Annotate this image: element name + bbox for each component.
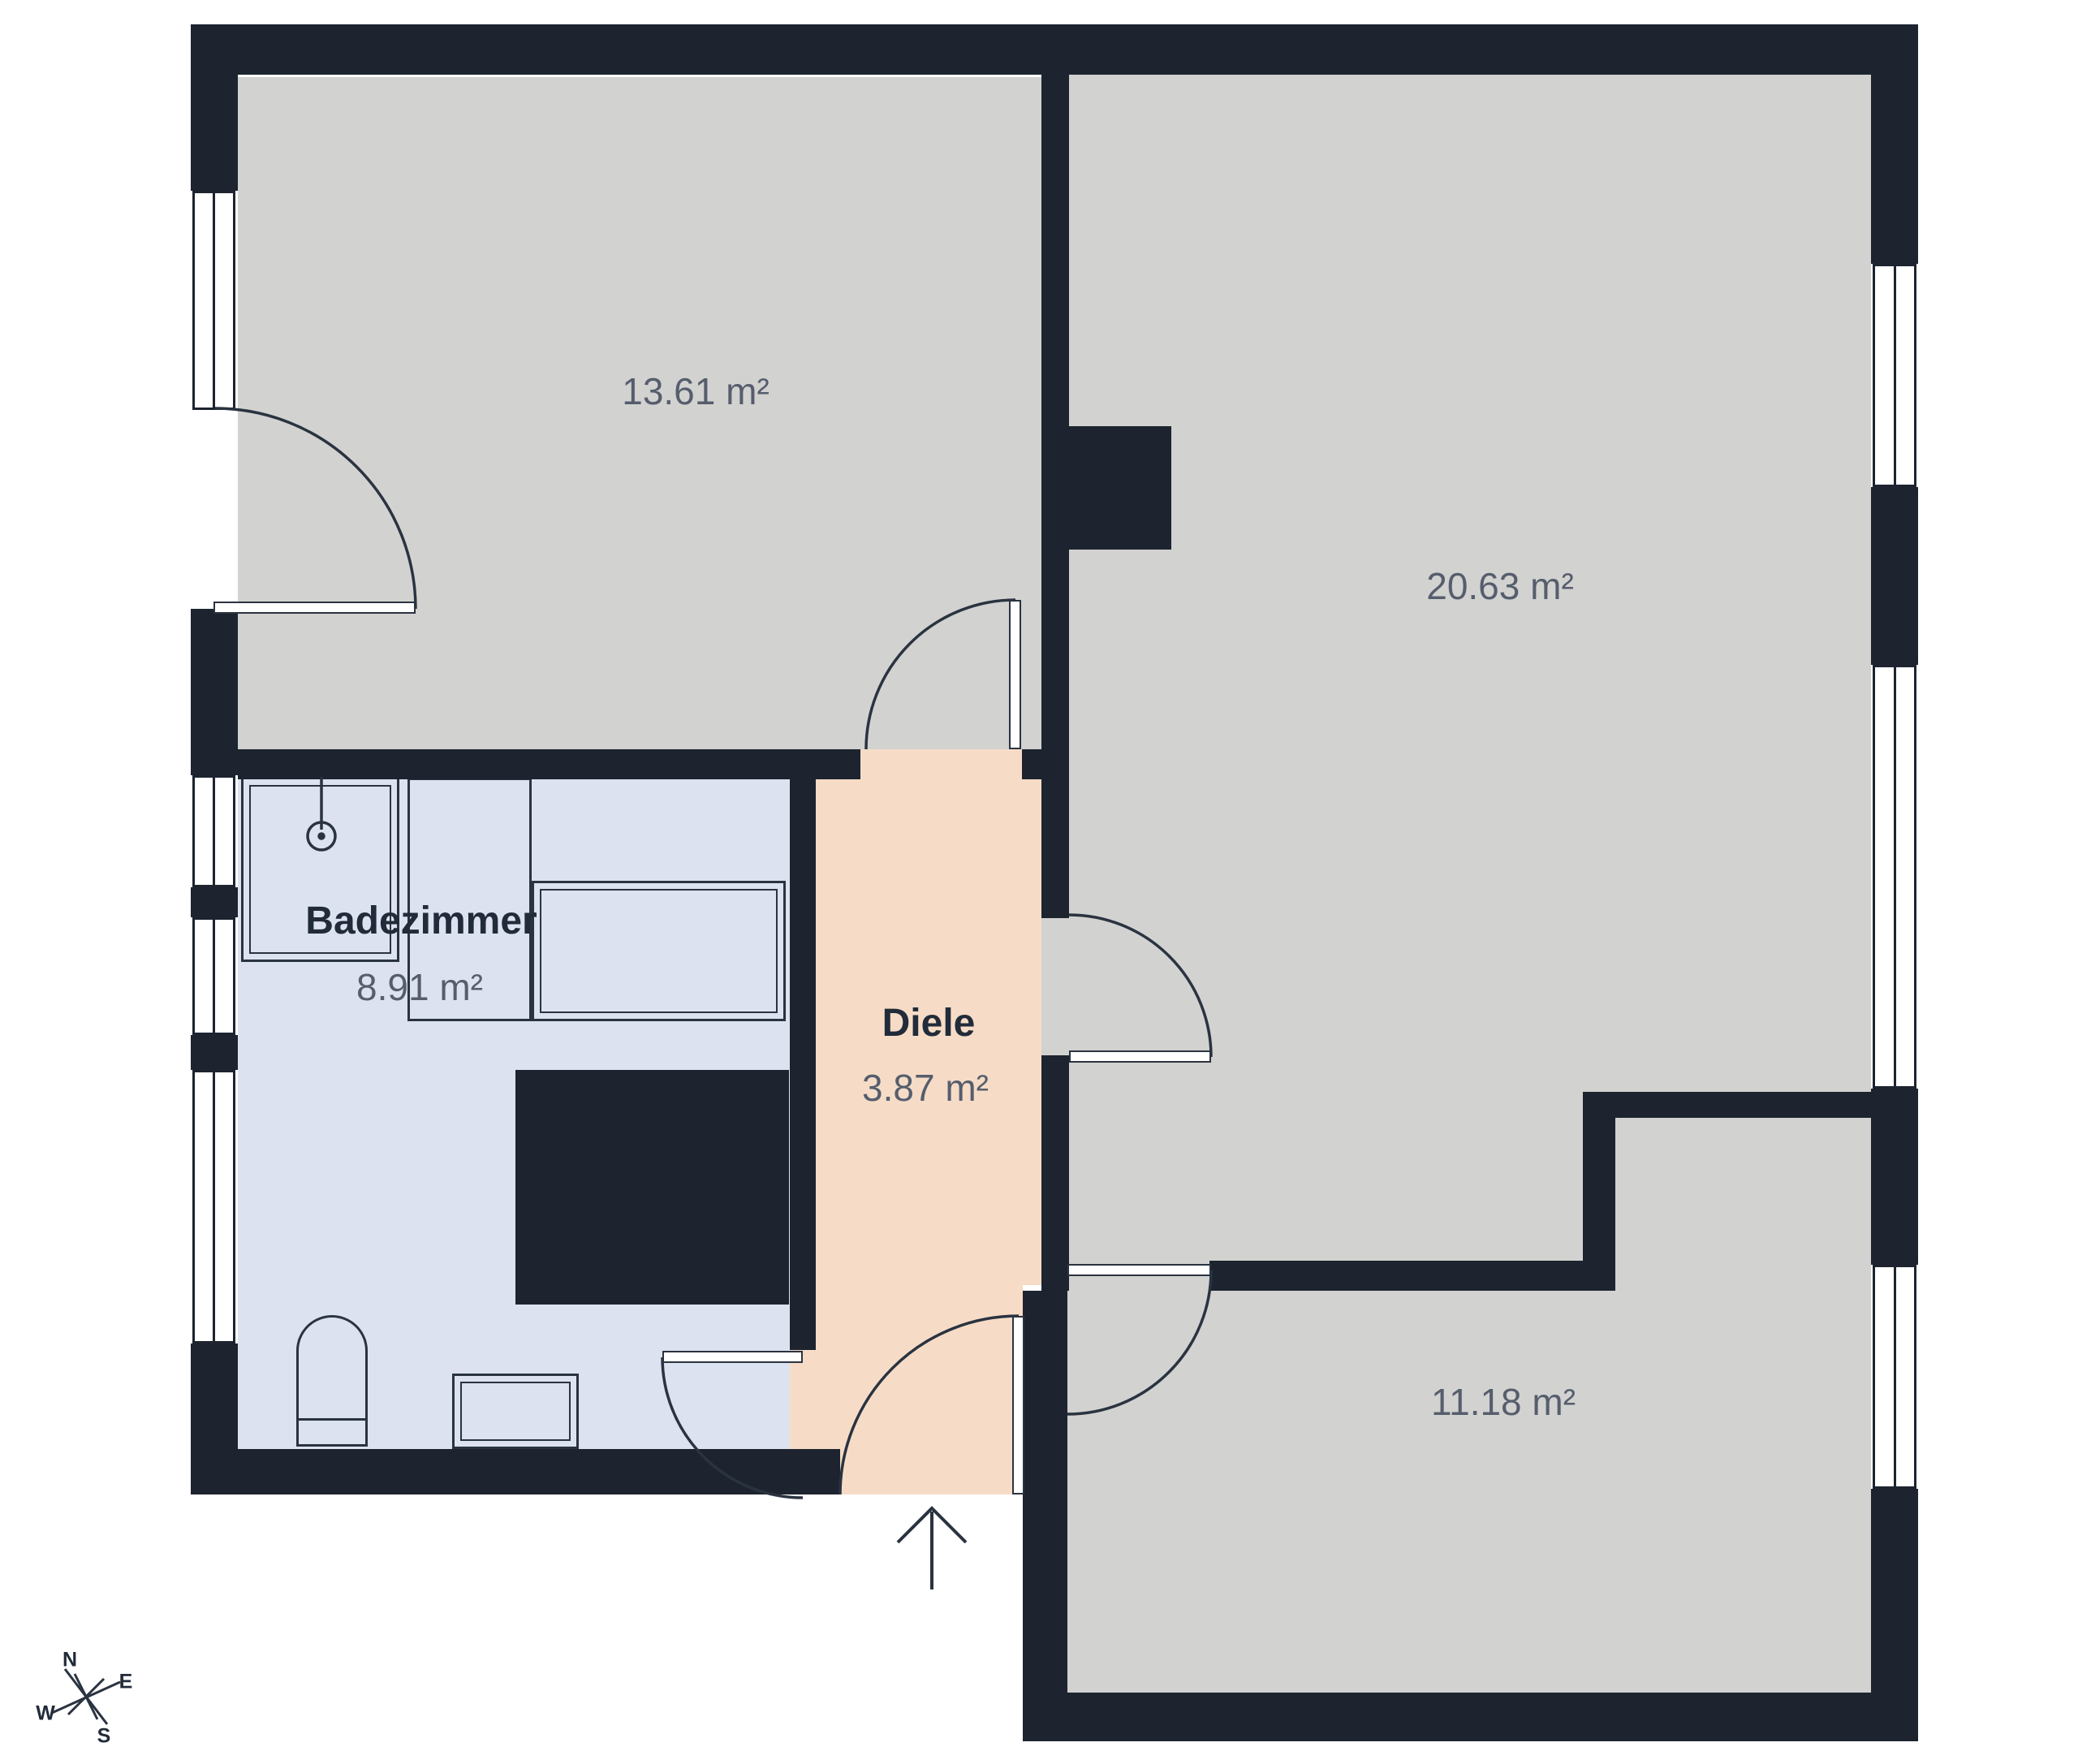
- compass-east-label: E: [119, 1671, 133, 1694]
- floor-plan: 13.61 m² 20.63 m² Badezimmer 8.91 m² Die…: [0, 0, 2078, 1764]
- diele-area-label: 3.87 m²: [862, 1069, 989, 1106]
- room-13-61-area-label: 13.61 m²: [622, 373, 770, 410]
- sink: [452, 1374, 579, 1449]
- wall-bottom-left: [191, 1449, 840, 1494]
- compass-north-label: N: [63, 1649, 77, 1672]
- badezimmer-area-label: 8.91 m²: [356, 968, 483, 1006]
- compass-star-icon: [52, 1669, 120, 1724]
- wall-right-b: [1871, 487, 1918, 665]
- window-bath-3: [192, 1070, 235, 1343]
- wall-right-a: [1871, 24, 1918, 264]
- door-leaf-bathroom: [662, 1351, 803, 1363]
- window-mullion: [213, 778, 215, 885]
- door-leaf-diele-room2063: [1069, 1050, 1211, 1063]
- wall-bath-right: [790, 779, 816, 1350]
- room-20-63-area-label: 20.63 m²: [1426, 567, 1574, 605]
- diele-floor-lower: [816, 1285, 1023, 1449]
- door-leaf-diele-room1361: [1009, 600, 1021, 749]
- washing-machine-drum: [540, 889, 778, 1013]
- room-11-18-floor-step: [1583, 1291, 1615, 1693]
- badezimmer-title: Badezimmer: [305, 902, 537, 941]
- wall-entry-column: [1023, 1291, 1067, 1737]
- window-room1361-left: [192, 191, 235, 410]
- window-mullion: [213, 193, 215, 408]
- window-mullion: [1894, 667, 1896, 1086]
- wall-left-gap1: [191, 887, 238, 917]
- window-mullion: [213, 1072, 215, 1341]
- room-13-61-floor: [238, 77, 1041, 749]
- sink-basin: [460, 1382, 571, 1441]
- room-11-18-area-label: 11.18 m²: [1431, 1383, 1576, 1421]
- window-mullion: [213, 920, 215, 1033]
- chimney-block: [1069, 426, 1171, 550]
- room-11-18-floor: [1067, 1291, 1583, 1693]
- wall-left-upper: [191, 75, 238, 191]
- window-mullion: [1894, 266, 1896, 485]
- room-11-18-floor-right: [1615, 1118, 1871, 1693]
- wall-bath-top-right: [1022, 749, 1041, 779]
- compass-south-label: S: [97, 1725, 111, 1749]
- wall-block-bath-diele: [515, 1070, 789, 1305]
- bath-door-sill: [790, 1350, 816, 1449]
- entry-arrow-icon: [898, 1508, 966, 1589]
- room-20-63-floor: [1069, 75, 1583, 1261]
- entry-threshold: [840, 1449, 1019, 1494]
- wall-top: [191, 24, 1918, 75]
- wall-right-c: [1871, 1089, 1918, 1265]
- compass-west-label: W: [36, 1702, 55, 1726]
- diele-title: Diele: [882, 1004, 976, 1043]
- window-room1118: [1873, 1265, 1916, 1489]
- toilet: [296, 1315, 368, 1447]
- diele-door-sill-right: [1041, 918, 1069, 1055]
- wall-bottom-right: [1023, 1693, 1918, 1741]
- diele-door-sill-top: [860, 749, 1022, 779]
- wall-divider-right: [1583, 1092, 1918, 1118]
- wall-left-mid: [191, 609, 238, 775]
- wall-divider-step: [1583, 1092, 1615, 1291]
- window-bath-1: [192, 775, 235, 887]
- wall-left-gap2: [191, 1035, 238, 1070]
- wall-middle-upper: [1041, 75, 1069, 918]
- door-leaf-entry: [1012, 1316, 1024, 1494]
- wall-middle-lower: [1041, 1055, 1069, 1291]
- washing-machine: [532, 881, 786, 1021]
- window-room2063-top: [1873, 264, 1916, 487]
- wall-bath-top: [238, 749, 860, 779]
- window-bath-2: [192, 917, 235, 1035]
- door-leaf-balcony: [213, 602, 416, 614]
- room-20-63-floor-right: [1583, 75, 1871, 1092]
- window-mullion: [1894, 1267, 1896, 1486]
- toilet-seat-line: [296, 1418, 368, 1421]
- wall-divider-left: [1209, 1261, 1615, 1291]
- window-room2063-bottom: [1873, 665, 1916, 1089]
- door-leaf-room1118: [1067, 1264, 1211, 1276]
